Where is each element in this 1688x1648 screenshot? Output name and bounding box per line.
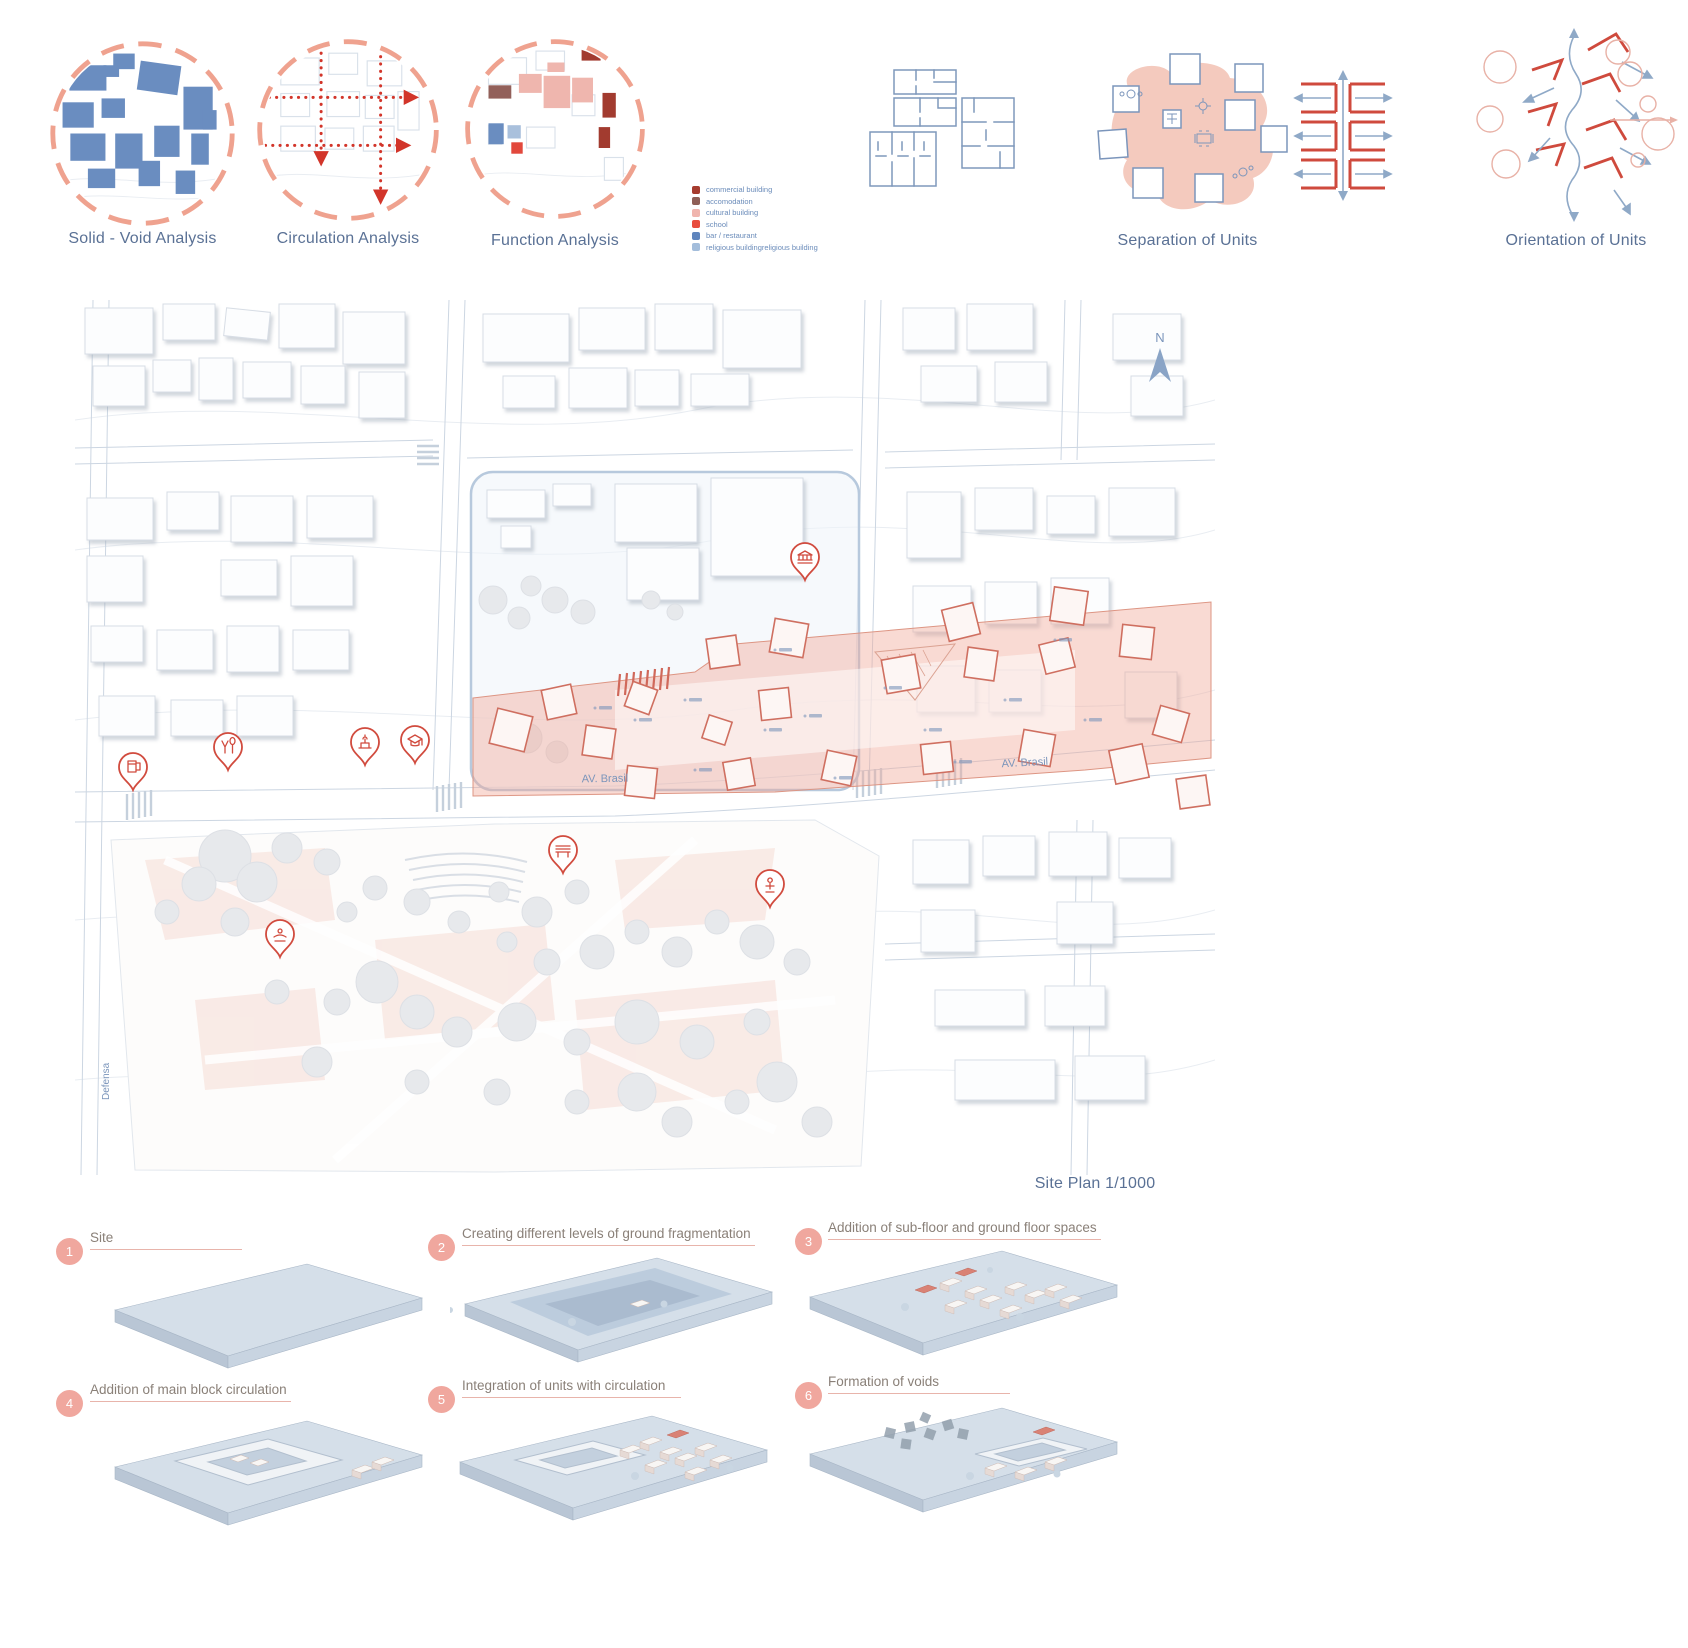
step-number-badge: 4 bbox=[56, 1390, 83, 1417]
street-label: AV. Brasil bbox=[1001, 756, 1048, 770]
solid-void-content bbox=[55, 54, 231, 200]
street-label: AV. Brasil bbox=[582, 773, 629, 786]
legend-item: accomodation bbox=[692, 197, 882, 206]
svg-text:N: N bbox=[1155, 330, 1164, 345]
legend-label: accomodation bbox=[706, 197, 753, 206]
step-diagram-fragmentation bbox=[450, 1252, 785, 1367]
function-analysis-map bbox=[460, 34, 650, 224]
site-plan-map: AV. Brasil AV. Brasil Defensa N bbox=[75, 300, 1215, 1175]
step-diagram-circulation bbox=[100, 1415, 435, 1530]
legend-item: bar / restaurant bbox=[692, 231, 882, 240]
color-swatch bbox=[692, 209, 700, 217]
orientation-of-units-diagram bbox=[1470, 22, 1682, 234]
presentation-board: Solid - Void Analysis Circulation Analys… bbox=[0, 0, 1688, 1648]
unit-separation-arrows-diagram bbox=[1293, 68, 1393, 203]
color-swatch bbox=[692, 186, 700, 194]
legend-label: commercial building bbox=[706, 185, 772, 194]
legend-label: cultural building bbox=[706, 208, 758, 217]
unit-diagram-caption: Separation of Units bbox=[1075, 232, 1300, 250]
unit-floor-plans-diagram bbox=[868, 68, 1018, 190]
pin-restaurant-icon bbox=[214, 733, 242, 770]
site-plan-caption: Site Plan 1/1000 bbox=[995, 1175, 1195, 1193]
street-label: Defensa bbox=[101, 1062, 112, 1100]
step-label: Addition of sub-floor and ground floor s… bbox=[828, 1220, 1101, 1240]
separation-of-units-diagram bbox=[1075, 50, 1300, 222]
step-label: Addition of main block circulation bbox=[90, 1382, 291, 1402]
legend-item: cultural building bbox=[692, 208, 882, 217]
color-swatch bbox=[692, 243, 700, 251]
step-diagram-subfloor bbox=[795, 1245, 1130, 1360]
step-number-badge: 5 bbox=[428, 1386, 455, 1413]
pin-graduation-cap-icon bbox=[401, 726, 429, 763]
circulation-content bbox=[262, 49, 435, 205]
step-label: Formation of voids bbox=[828, 1374, 1010, 1394]
color-swatch bbox=[692, 220, 700, 228]
step-diagram-site bbox=[100, 1258, 435, 1373]
legend-item: commercial building bbox=[692, 185, 882, 194]
legend-label: bar / restaurant bbox=[706, 231, 757, 240]
step-diagram-units bbox=[445, 1410, 780, 1525]
step-label: Creating different levels of ground frag… bbox=[462, 1226, 755, 1246]
step-label: Integration of units with circulation bbox=[462, 1378, 681, 1398]
analysis-caption: Circulation Analysis bbox=[252, 230, 444, 248]
step-label: Site bbox=[90, 1230, 242, 1250]
legend-item: school bbox=[692, 220, 882, 229]
unit-diagram-caption: Orientation of Units bbox=[1470, 232, 1682, 250]
analysis-caption: Function Analysis bbox=[460, 232, 650, 250]
color-swatch bbox=[692, 197, 700, 205]
analysis-caption: Solid - Void Analysis bbox=[45, 230, 240, 248]
solid-void-analysis-map bbox=[45, 36, 240, 231]
color-swatch bbox=[692, 232, 700, 240]
function-content bbox=[470, 49, 641, 180]
legend-item: religious buildingreligious building bbox=[692, 243, 882, 252]
step-number-badge: 1 bbox=[56, 1238, 83, 1265]
step-diagram-voids bbox=[795, 1402, 1130, 1517]
function-legend: commercial building accomodation cultura… bbox=[692, 185, 882, 254]
legend-label: religious buildingreligious building bbox=[706, 243, 818, 252]
pin-landmark-icon bbox=[351, 728, 379, 765]
circulation-analysis-map bbox=[252, 34, 444, 226]
pin-beer-mug-icon bbox=[119, 753, 147, 790]
legend-label: school bbox=[706, 220, 728, 229]
